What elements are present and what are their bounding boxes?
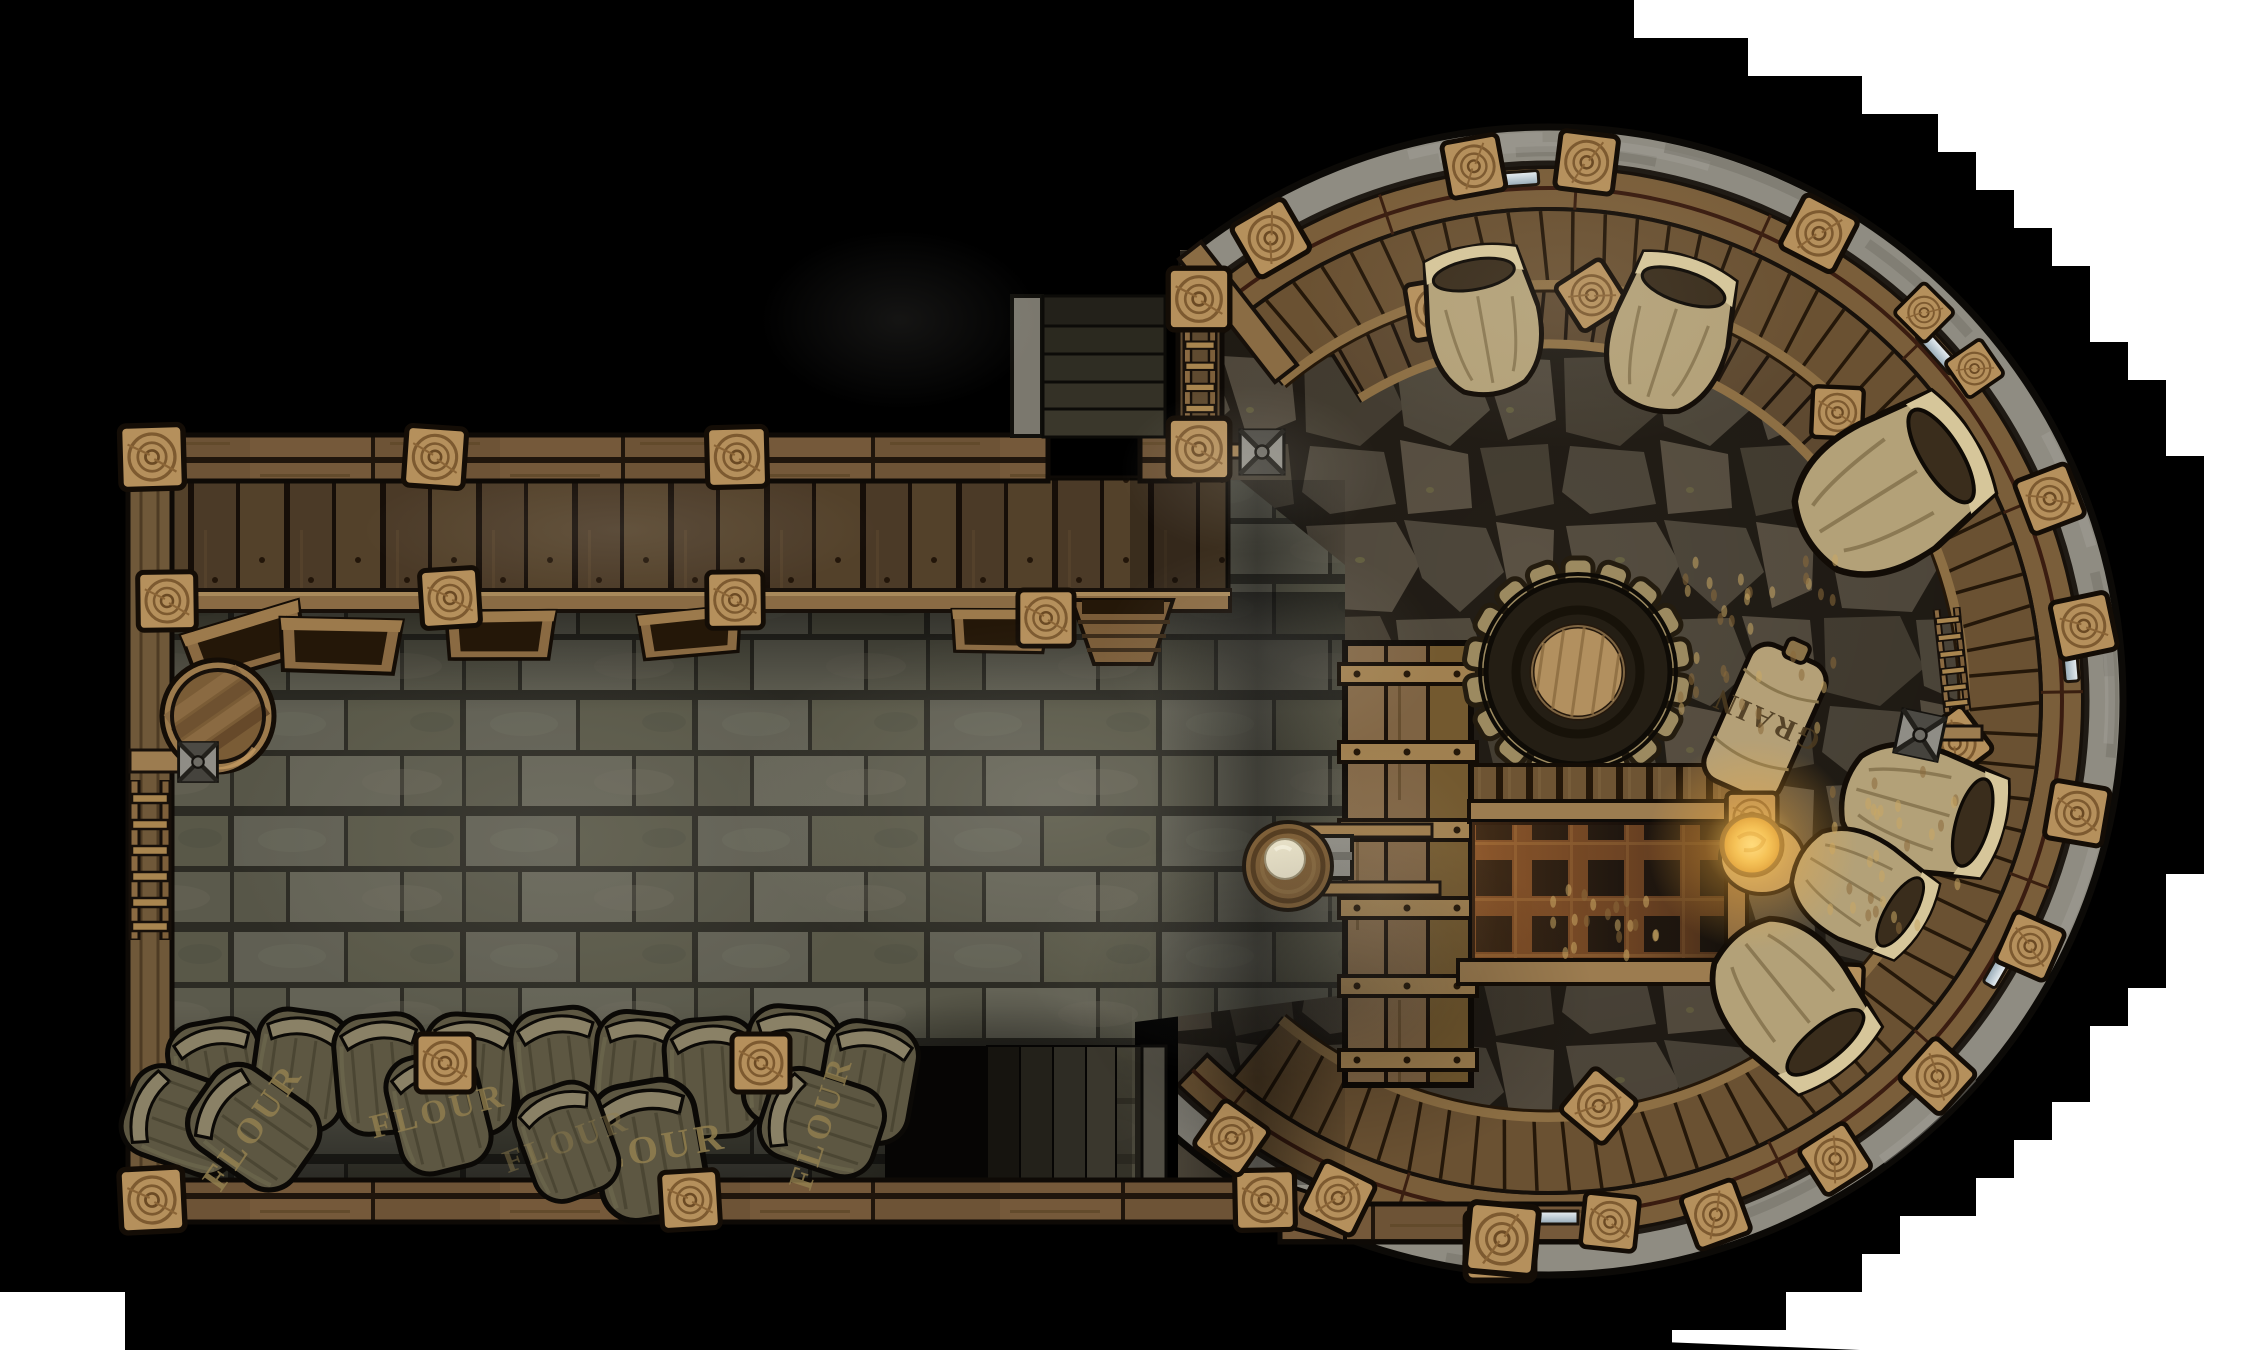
grain-spill bbox=[1584, 915, 1590, 927]
grain-spill bbox=[1723, 671, 1729, 683]
gallery-post-outer bbox=[2049, 592, 2118, 661]
grain-spill bbox=[1873, 906, 1879, 918]
mill-gear bbox=[1463, 558, 1693, 786]
wall-post bbox=[659, 1169, 720, 1230]
grain-spill bbox=[1868, 892, 1874, 904]
grain-spill bbox=[1758, 722, 1764, 734]
grain-spill bbox=[1693, 557, 1699, 569]
grain-spill bbox=[1605, 908, 1611, 920]
grain-spill bbox=[1832, 554, 1838, 566]
grain-spill bbox=[1799, 669, 1805, 681]
grain-spill bbox=[1879, 870, 1885, 882]
grain-spill bbox=[1904, 840, 1910, 852]
grain-spill bbox=[1707, 577, 1713, 589]
entrance-stairs bbox=[1043, 296, 1165, 437]
wall-post bbox=[1580, 1192, 1640, 1252]
grain-spill bbox=[1803, 572, 1809, 584]
grain-spill bbox=[1865, 909, 1871, 921]
grain-spill bbox=[1756, 708, 1762, 720]
grain-spill bbox=[1744, 593, 1750, 605]
grain-spill bbox=[1830, 657, 1836, 669]
grain-spill bbox=[1891, 911, 1897, 923]
light-shaft bbox=[1300, 150, 1820, 450]
grain-spill bbox=[1694, 652, 1700, 664]
grain-spill bbox=[1951, 796, 1957, 808]
grain-spill bbox=[1818, 588, 1824, 600]
grain-spill bbox=[1790, 651, 1796, 663]
grain-spill bbox=[1914, 919, 1920, 931]
grain-spill bbox=[1590, 899, 1596, 911]
grain-spill bbox=[1756, 671, 1762, 683]
gallery-post-outer bbox=[2044, 780, 2111, 847]
grain-spill bbox=[1814, 722, 1820, 734]
grain-spill bbox=[1938, 820, 1944, 832]
grain-spill bbox=[1895, 800, 1901, 812]
grain-spill bbox=[1693, 686, 1699, 698]
grain-spill bbox=[1689, 673, 1695, 685]
wall-post bbox=[138, 572, 197, 631]
grain-spill bbox=[1711, 589, 1717, 601]
grain-spill bbox=[1896, 922, 1902, 934]
grain-spill bbox=[1566, 884, 1572, 896]
wall-post bbox=[119, 1167, 186, 1234]
grain-spill bbox=[1865, 798, 1871, 810]
grain-spill bbox=[1830, 594, 1836, 606]
grain-spill bbox=[1929, 828, 1935, 840]
grain-spill bbox=[1572, 914, 1578, 926]
grain-spill bbox=[1821, 681, 1827, 693]
grain-spill bbox=[1874, 808, 1880, 820]
floor-post bbox=[732, 1034, 790, 1092]
grain-spill bbox=[1717, 613, 1723, 625]
grain-spill bbox=[1616, 931, 1622, 943]
grain-spill bbox=[1683, 573, 1689, 585]
top-wall bbox=[128, 435, 1048, 481]
wall-post bbox=[403, 425, 467, 489]
floor-post bbox=[416, 1034, 474, 1092]
grain-spill bbox=[1613, 901, 1619, 913]
grain-spill bbox=[1880, 896, 1886, 908]
grain-spill bbox=[1581, 889, 1587, 901]
grain-spill bbox=[1678, 691, 1684, 703]
grain-spill bbox=[1653, 929, 1659, 941]
grain-spill bbox=[1747, 623, 1753, 635]
grain-spill bbox=[1872, 777, 1878, 789]
wall-post bbox=[419, 567, 481, 629]
wall-post bbox=[707, 572, 764, 629]
grain-spill bbox=[1920, 766, 1926, 778]
water-valve-right bbox=[1894, 709, 1946, 761]
grain-spill bbox=[1615, 919, 1621, 931]
grain-spill bbox=[1729, 615, 1735, 627]
wall-post bbox=[706, 426, 767, 487]
grain-spill bbox=[1679, 703, 1685, 715]
grain-spill bbox=[1954, 878, 1960, 890]
grain-spill bbox=[1867, 856, 1873, 868]
grain-spill bbox=[1643, 896, 1649, 908]
wall-post bbox=[1168, 268, 1230, 330]
wall-post bbox=[1234, 1169, 1295, 1230]
grain-spill bbox=[1685, 585, 1691, 597]
water-valve-left bbox=[179, 743, 218, 782]
grain-spill bbox=[1739, 698, 1745, 710]
mill-battlemap: FLOURFLOURFLOURFLOURFLOUR bbox=[0, 0, 2250, 1350]
grain-spill bbox=[1896, 817, 1902, 829]
grain-spill bbox=[1850, 902, 1856, 914]
lantern-glow bbox=[1647, 740, 1857, 950]
grain-spill bbox=[1623, 949, 1629, 961]
gallery-post-outer bbox=[1465, 1202, 1540, 1277]
grain-spill bbox=[1873, 850, 1879, 862]
grain-spill bbox=[1624, 895, 1630, 907]
grain-spill bbox=[1769, 586, 1775, 598]
grain-spill bbox=[1738, 573, 1744, 585]
wall-post bbox=[119, 424, 184, 489]
grain-spill bbox=[1632, 919, 1638, 931]
battlemap-stage: FLOURFLOURFLOURFLOURFLOUR bbox=[0, 0, 2250, 1350]
grain-spill bbox=[1803, 555, 1809, 567]
